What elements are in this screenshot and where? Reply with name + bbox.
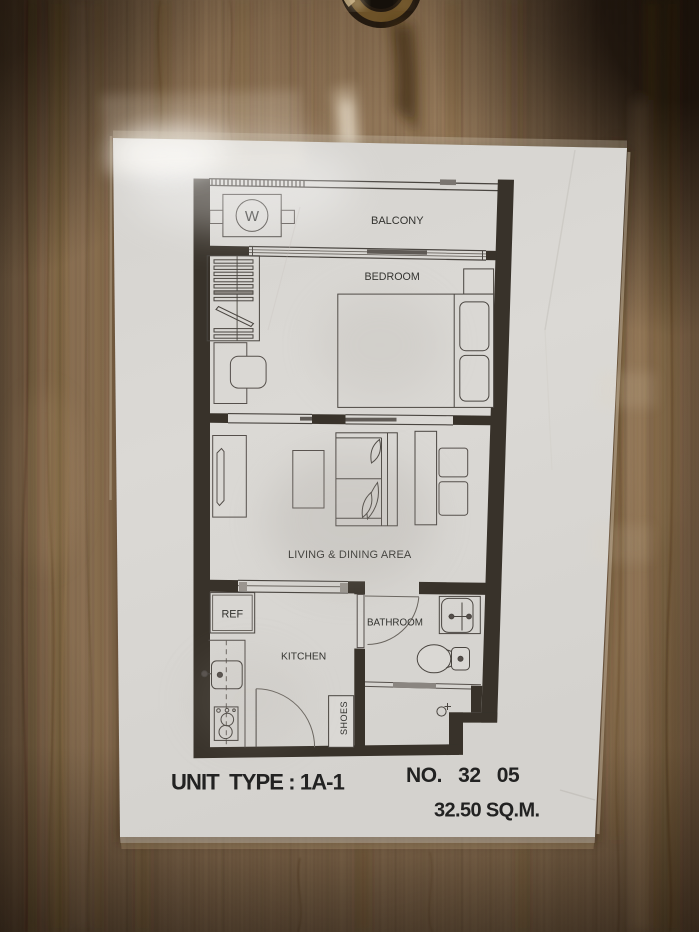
svg-text:REF: REF xyxy=(222,609,244,621)
svg-text:SHOES: SHOES xyxy=(339,701,349,735)
svg-text:32.50 SQ.M.: 32.50 SQ.M. xyxy=(434,800,540,822)
svg-text:BEDROOM: BEDROOM xyxy=(365,271,420,283)
svg-text:BALCONY: BALCONY xyxy=(371,215,424,227)
svg-text:KITCHEN: KITCHEN xyxy=(281,652,326,663)
svg-text:NO. 32 05: NO. 32 05 xyxy=(406,764,520,787)
svg-text:UNIT TYPE : 1A-1: UNIT TYPE : 1A-1 xyxy=(171,770,345,795)
svg-text:BATHROOM: BATHROOM xyxy=(367,618,423,629)
